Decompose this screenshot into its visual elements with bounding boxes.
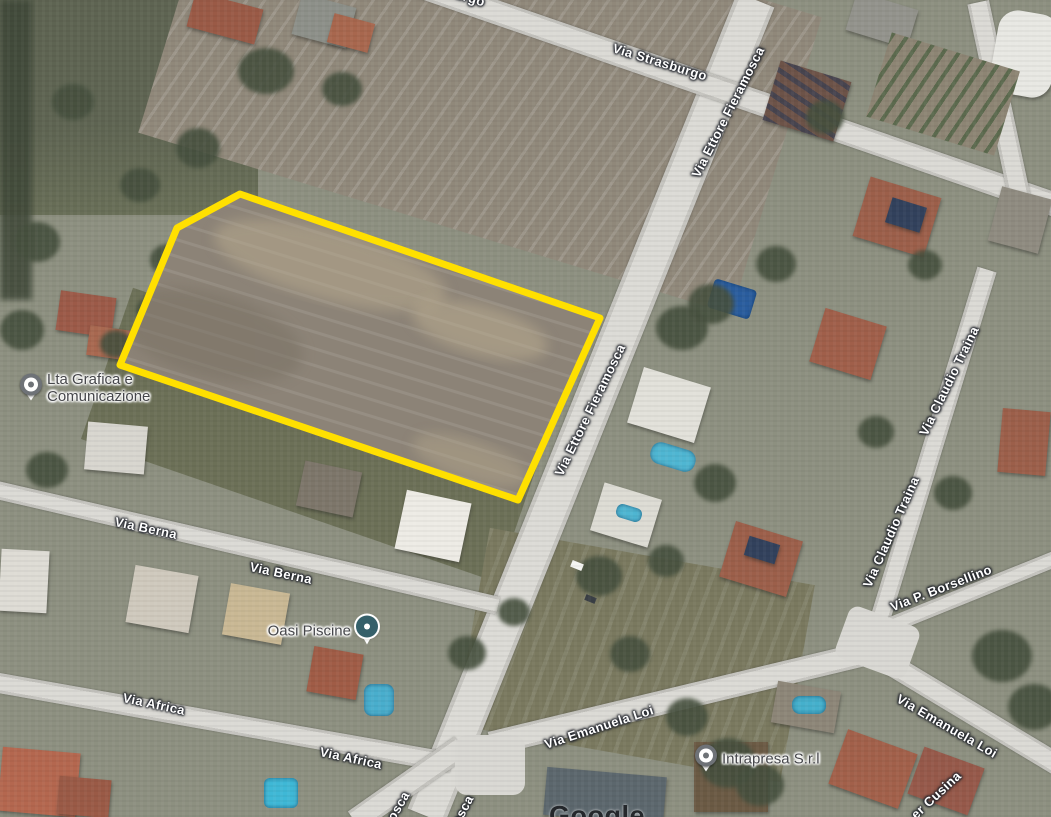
road-label: Via Emanuela Loi (543, 702, 656, 751)
google-watermark: Google (549, 801, 645, 817)
road-label: er Cusina (908, 768, 964, 817)
map-labels: Via StrasburgoVia StrasburgoVia Ettore F… (0, 0, 1051, 817)
pin-dot (703, 753, 709, 759)
poi-label-line: Intrapresa S.r.l (722, 752, 820, 769)
road-label: Via Strasburgo (611, 41, 709, 84)
road-label: Via Berna (113, 514, 178, 542)
pin-dot (28, 382, 34, 388)
road-label: Via Ettore Fieramosca (552, 342, 629, 479)
satellite-map-canvas[interactable]: Via StrasburgoVia StrasburgoVia Ettore F… (0, 0, 1051, 817)
poi-label-line: Oasi Piscine (268, 624, 351, 641)
road-label: Via Africa (318, 744, 383, 772)
poi-label-line: Comunicazione (47, 389, 150, 406)
road-label: Via Ettore Fieramosca (327, 789, 412, 817)
teal-pin-marker[interactable] (355, 616, 379, 646)
road-label: Via Claudio Traina (916, 324, 982, 438)
road-label: Via Emanuela Loi (894, 691, 1000, 761)
road-label: Via P. Borsellino (888, 562, 994, 615)
poi-label[interactable]: Intrapresa S.r.l (722, 752, 820, 769)
poi-label[interactable]: Lta Grafica eComunicazione (47, 372, 150, 406)
poi-label-line: Lta Grafica e (47, 372, 150, 389)
poi-label[interactable]: Oasi Piscine (268, 624, 351, 641)
road-label: Via Ettore Fieramosca (688, 44, 767, 180)
grey-dot-pin-marker[interactable] (694, 744, 718, 774)
road-label: Via Africa (121, 690, 186, 718)
grey-dot-pin-marker[interactable] (19, 373, 43, 403)
pin-dot (364, 624, 370, 630)
road-label: Via Berna (248, 559, 313, 587)
road-label: Via Strasburgo (389, 0, 487, 9)
road-label: Via Claudio Traina (860, 474, 922, 589)
